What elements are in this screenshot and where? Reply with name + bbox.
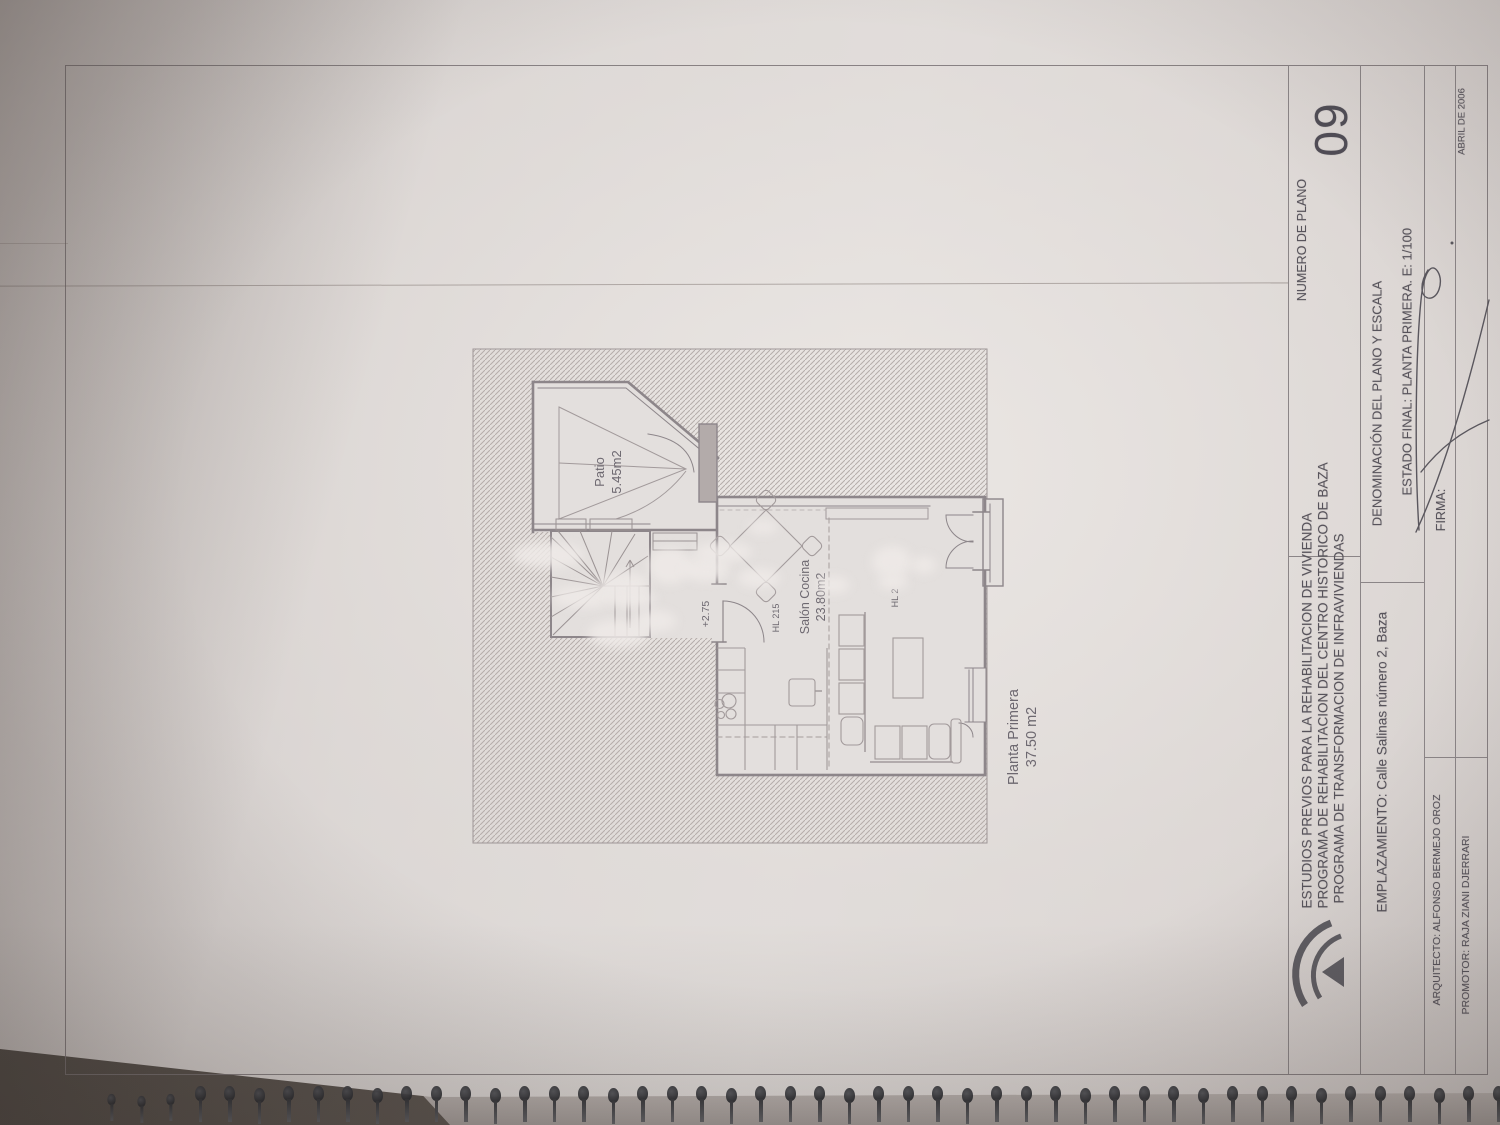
- signature: [1395, 230, 1500, 550]
- fecha-line: ABRIL DE 2006: [1457, 77, 1468, 167]
- hl2-label: HL 2: [890, 589, 900, 608]
- promotor-line: PROMOTOR: RAJA ZIANI DJERRARI: [1460, 825, 1472, 1025]
- titleblock-divider: [1424, 65, 1425, 1074]
- spiral-binding-pin: [166, 1094, 174, 1105]
- spiral-binding-pin: [283, 1086, 294, 1101]
- salon-label: Salón Cocina: [798, 560, 812, 634]
- titleblock-divider: [1360, 65, 1361, 1074]
- titleblock-divider: [1455, 65, 1456, 1074]
- org-line-2: PROGRAMA DE REHABILITACION DEL CENTRO HI…: [1316, 529, 1331, 909]
- floor-area-label: 37.50 m2: [1024, 707, 1040, 767]
- numero-de-plano-label: NUMERO DE PLANO: [1295, 155, 1309, 325]
- spiral-binding-pin: [195, 1086, 206, 1101]
- floor-plan: Patio 5.45m2 Salón Cocina 23.80m2 HL 215…: [470, 345, 1060, 845]
- arquitecto-line: ARQUITECTO: ALFONSO BERMEJO OROZ: [1431, 785, 1443, 1015]
- paper-crease-short: [0, 243, 68, 244]
- org-line-3: PROGRAMA DE TRANSFORMACION DE INFRAVIVIE…: [1332, 529, 1347, 909]
- titleblock-cell-divider: [1360, 582, 1424, 583]
- titleblock-divider: [1288, 65, 1289, 1074]
- spiral-binding-pin: [342, 1086, 353, 1101]
- spiral-binding-pin: [107, 1094, 115, 1105]
- junta-de-andalucia-logo: [1290, 905, 1360, 1015]
- emplazamiento-line: EMPLAZAMIENTO: Calle Salinas número 2, B…: [1375, 613, 1390, 913]
- salon-area-label: 23.80m2: [814, 573, 828, 622]
- hl215-label: HL 215: [771, 604, 781, 633]
- titleblock-cell-divider: [1424, 757, 1487, 758]
- patio-area-label: 5.45m2: [609, 450, 624, 493]
- spiral-binding-pin: [137, 1096, 145, 1107]
- floor-name-label: Planta Primera: [1006, 688, 1022, 785]
- photo-of-architectural-drawing: Patio 5.45m2 Salón Cocina 23.80m2 HL 215…: [0, 0, 1500, 1125]
- spiral-binding-pin: [224, 1086, 235, 1101]
- spiral-binding-pin: [254, 1088, 265, 1103]
- spiral-binding-pin: [313, 1086, 324, 1101]
- org-line-1: ESTUDIOS PREVIOS PARA LA REHABILITACION …: [1300, 529, 1315, 909]
- denominacion-label: DENOMINACIÓN DEL PLANO Y ESCALA: [1370, 269, 1385, 539]
- level-label: +2.75: [700, 601, 712, 628]
- patio-label: Patio: [592, 457, 607, 487]
- plan-number: 09: [1304, 94, 1358, 164]
